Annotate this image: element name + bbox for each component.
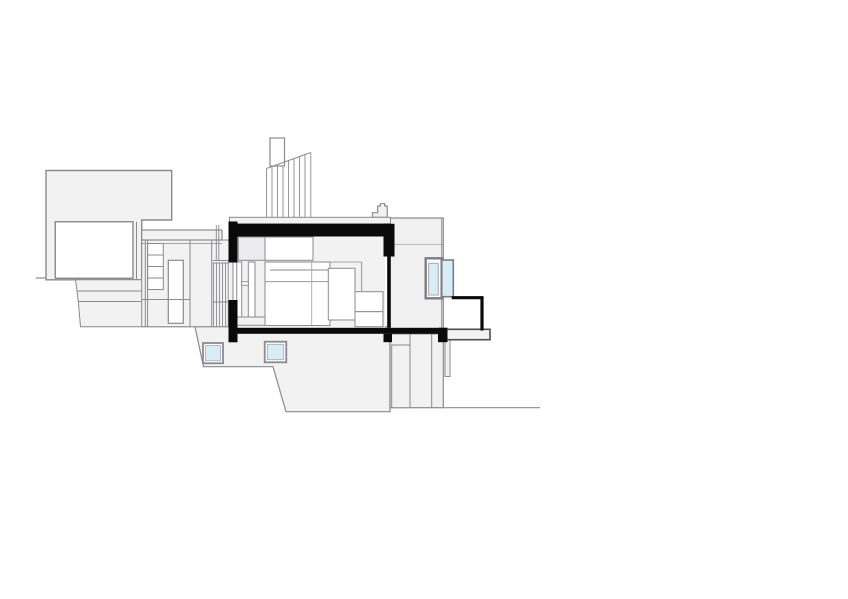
small-chimney — [373, 204, 388, 218]
balcony-slab — [447, 329, 490, 339]
section-drawing — [0, 0, 848, 599]
roof-parapet — [230, 217, 391, 224]
room-bed — [265, 262, 330, 326]
room-upright-tie — [242, 282, 249, 286]
room-upright-2 — [248, 262, 255, 317]
room-desk-lower — [355, 312, 383, 327]
porch-beam — [142, 230, 222, 240]
room-wardrobe — [328, 268, 355, 320]
roof-slab-cut — [229, 224, 392, 237]
downpipe-strip — [445, 340, 450, 377]
right-wall-thin-cut — [387, 257, 391, 328]
floor-slab-cut — [233, 328, 448, 334]
basement-window-1-glass — [206, 346, 221, 361]
porch-door — [168, 260, 183, 323]
terrace-band-2 — [77, 291, 143, 302]
page: Architectural section drawing Black-and-… — [0, 0, 848, 599]
bay-pane-outer — [442, 260, 454, 297]
balcony-wall-stub-cut — [438, 328, 448, 342]
room-cabinet-top — [265, 237, 313, 260]
roof-chimney — [270, 138, 285, 166]
left-wall-lower-cut — [229, 300, 238, 342]
left-house-window — [55, 222, 133, 279]
basement-window-2-glass — [267, 344, 283, 359]
right-wall-stub-cut — [384, 334, 393, 342]
basement-door — [392, 345, 410, 408]
room-plinth — [237, 317, 265, 325]
section-drawing-canvas — [0, 0, 848, 599]
room-shelf-panel — [238, 237, 265, 260]
right-wall-upper-cut — [384, 224, 395, 257]
balcony-balustrade — [452, 298, 482, 331]
terrace-band-1 — [76, 280, 144, 291]
bay-window-glass — [429, 263, 439, 295]
basement-body — [195, 327, 390, 412]
room-desk-upper — [355, 292, 383, 312]
left-wall-upper-cut — [229, 222, 238, 263]
